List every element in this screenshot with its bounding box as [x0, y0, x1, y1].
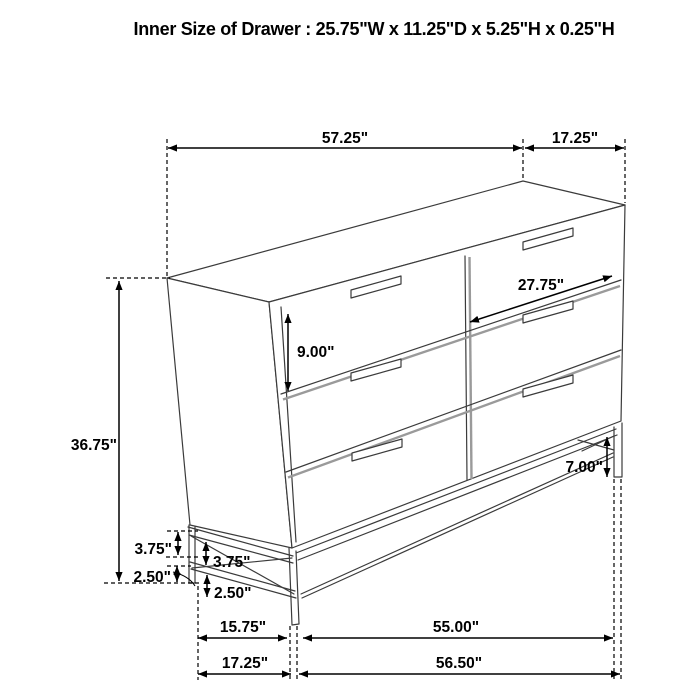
dim-label-base-front-outer: 56.50" [436, 655, 482, 672]
front-right-leg [614, 423, 622, 477]
dim-label-foot-b: 2.50" [214, 585, 252, 602]
dim-label-base-front-inner: 55.00" [433, 619, 479, 636]
dim-label-drawer-height: 9.00" [297, 344, 335, 361]
dim-overall-height: 36.75" [71, 281, 119, 581]
dim-base-left-span: 15.75" [198, 619, 287, 638]
dim-label-base-depth: 17.25" [222, 655, 268, 672]
dim-top-depth: 17.25" [525, 130, 624, 148]
dim-label-foot-a: 2.50" [133, 569, 171, 586]
dim-label-top-width: 57.25" [322, 130, 368, 147]
dim-base-front-inner: 55.00" [303, 619, 613, 638]
dim-label-top-depth: 17.25" [552, 130, 598, 147]
dim-base-depth: 17.25" [198, 655, 291, 674]
dim-side-rail-a: 3.75" [134, 532, 178, 558]
dim-base-front-outer: 56.50" [299, 655, 620, 674]
dresser-dimension-diagram: Inner Size of Drawer : 25.75"W x 11.25"D… [0, 0, 700, 700]
dim-label-overall-height: 36.75" [71, 437, 117, 454]
dim-label-drawer-width: 27.75" [518, 277, 564, 294]
drawing-title: Inner Size of Drawer : 25.75"W x 11.25"D… [134, 19, 615, 39]
dim-label-side-rail-a: 3.75" [134, 541, 172, 558]
dim-label-side-rail-b: 3.75" [213, 554, 251, 571]
dim-label-base-left-span: 15.75" [220, 619, 266, 636]
dim-top-width: 57.25" [168, 130, 522, 148]
dim-label-right-leg-height: 7.00" [565, 459, 603, 476]
technical-drawing-page: Inner Size of Drawer : 25.75"W x 11.25"D… [0, 0, 700, 700]
dim-foot-a: 2.50" [133, 566, 177, 586]
front-left-leg [289, 548, 299, 625]
dim-side-rail-b: 3.75" [206, 542, 251, 571]
back-left-leg [189, 525, 195, 583]
dim-right-leg-height: 7.00" [565, 437, 607, 477]
